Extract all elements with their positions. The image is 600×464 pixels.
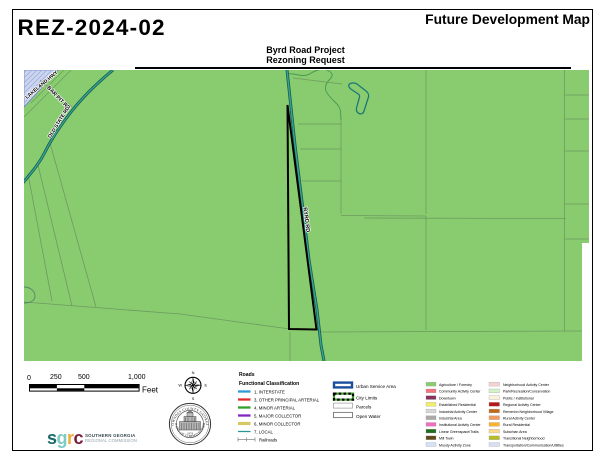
svg-text:S: S — [192, 396, 195, 401]
svg-text:Moody Activity Zone: Moody Activity Zone — [439, 443, 471, 447]
svg-text:Linear Greenspace/Trails: Linear Greenspace/Trails — [439, 430, 479, 434]
svg-text:1, INTERSTATE: 1, INTERSTATE — [254, 389, 285, 394]
svg-text:Community Activity Center: Community Activity Center — [439, 390, 481, 394]
svg-text:Mill Town: Mill Town — [439, 437, 454, 441]
svg-text:6, MINOR COLLECTOR: 6, MINOR COLLECTOR — [254, 421, 300, 426]
svg-text:7, LOCAL: 7, LOCAL — [254, 429, 273, 434]
svg-text:Transitional Neighborhood: Transitional Neighborhood — [503, 437, 544, 441]
svg-text:Transportation/Communication/U: Transportation/Communication/Utilities — [503, 443, 564, 447]
svg-text:Open Water: Open Water — [356, 414, 381, 419]
svg-text:N: N — [192, 370, 195, 375]
svg-text:Industrial Activity Center: Industrial Activity Center — [439, 410, 478, 414]
svg-text:Rural Residential: Rural Residential — [503, 423, 530, 427]
svg-text:Railroads: Railroads — [259, 437, 277, 442]
svg-text:3, OTHER PRINCIPAL ARTERIAL: 3, OTHER PRINCIPAL ARTERIAL — [254, 397, 320, 402]
svg-text:Institutional Activity Center: Institutional Activity Center — [439, 423, 481, 427]
svg-text:5, MAJOR COLLECTOR: 5, MAJOR COLLECTOR — [254, 413, 301, 418]
svg-text:Industrial Area: Industrial Area — [439, 417, 462, 421]
svg-text:1874: 1874 — [187, 431, 194, 435]
svg-text:Downtown: Downtown — [439, 396, 456, 400]
svg-text:Rural Activity Center: Rural Activity Center — [503, 417, 536, 421]
svg-text:Remerton Neighborhood Village: Remerton Neighborhood Village — [503, 410, 553, 414]
svg-text:Agriculture / Forestry: Agriculture / Forestry — [439, 383, 472, 387]
svg-text:4, MINOR ARTERIAL: 4, MINOR ARTERIAL — [254, 405, 296, 410]
svg-text:Regional Activity Center: Regional Activity Center — [503, 403, 541, 407]
svg-text:Parcels: Parcels — [356, 405, 372, 410]
svg-text:Neighborhood Activity Center: Neighborhood Activity Center — [503, 383, 550, 387]
svg-text:E: E — [204, 383, 207, 388]
svg-text:Suburban Area: Suburban Area — [503, 430, 527, 434]
svg-text:Urban Service Area: Urban Service Area — [356, 384, 396, 389]
svg-text:City Limits: City Limits — [356, 396, 378, 401]
svg-text:Park/Recreation/Conservation: Park/Recreation/Conservation — [503, 390, 550, 394]
svg-text:Established Residential: Established Residential — [439, 403, 476, 407]
svg-text:Feet: Feet — [142, 385, 159, 394]
svg-text:Public / Institutional: Public / Institutional — [503, 396, 534, 400]
svg-text:W: W — [178, 383, 182, 388]
